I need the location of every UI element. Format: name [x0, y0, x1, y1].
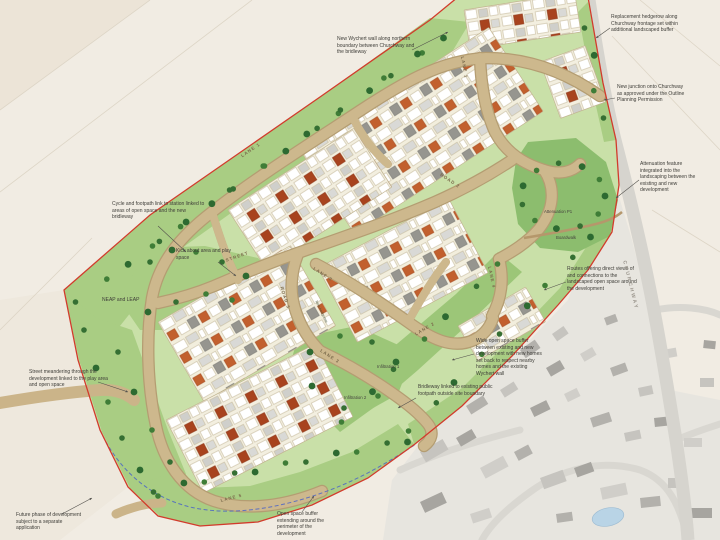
tree-icon	[601, 115, 607, 121]
tree-icon	[388, 73, 394, 79]
tree-icon	[602, 193, 609, 200]
tree-icon	[105, 399, 111, 405]
annotation-future-phase: Future phase of development subject to a…	[16, 512, 82, 532]
tree-icon	[229, 297, 235, 303]
tree-icon	[341, 405, 347, 411]
building-footprint	[640, 496, 661, 508]
annotation-wychert-wall: New Wychert wall along northern boundary…	[337, 36, 421, 56]
annotation-replacement-hedgerow: Replacement hedgerow along Churchway fro…	[611, 14, 679, 34]
tree-icon	[145, 309, 152, 316]
building-footprint	[703, 340, 716, 349]
tree-icon	[520, 182, 527, 189]
building-footprint	[684, 438, 702, 447]
tree-icon	[149, 427, 155, 433]
tree-icon	[73, 299, 79, 305]
annotation-open-space-buffer: Open space buffer extending around the p…	[277, 511, 335, 537]
tree-icon	[203, 291, 209, 297]
building-footprint	[690, 508, 712, 518]
annotation-attenuation-feature: Attenuation feature integrated into the …	[640, 161, 704, 194]
tree-icon	[542, 283, 548, 289]
tree-icon	[125, 261, 132, 268]
tree-icon	[157, 239, 163, 245]
tree-icon	[570, 254, 576, 260]
tree-icon	[150, 243, 156, 249]
tree-icon	[556, 160, 562, 166]
tree-icon	[178, 224, 184, 230]
annotation-infiltration-2: Infiltration 2	[344, 395, 388, 401]
tree-icon	[137, 467, 144, 474]
tree-icon	[474, 284, 480, 290]
tree-icon	[333, 450, 340, 457]
tree-icon	[434, 400, 440, 406]
tree-icon	[155, 493, 161, 499]
tree-icon	[497, 331, 503, 337]
tree-icon	[406, 428, 412, 434]
annotation-street-meandering: Street meandering through the developmen…	[29, 369, 111, 389]
tree-icon	[252, 469, 259, 476]
tree-icon	[202, 479, 208, 485]
tree-icon	[524, 302, 531, 309]
tree-icon	[553, 225, 560, 232]
tree-icon	[167, 459, 173, 465]
masterplan-page: New Wychert wall along northern boundary…	[0, 0, 720, 540]
annotation-cycle-link: Cycle and footpath link to station linke…	[112, 201, 206, 221]
annotation-neap-leap: NEAP and LEAP	[102, 297, 172, 304]
tree-icon	[495, 261, 501, 267]
tree-icon	[309, 383, 316, 390]
tree-icon	[577, 223, 583, 229]
annotation-attenuation-pond: Attenuation P1	[544, 209, 604, 215]
annotation-boardwalk: Boardwalk	[556, 235, 596, 241]
annotation-infiltration-1: Infiltration 1	[377, 364, 417, 370]
tree-icon	[147, 259, 153, 265]
tree-icon	[404, 439, 411, 446]
tree-icon	[131, 389, 138, 396]
tree-icon	[384, 440, 390, 446]
tree-icon	[442, 313, 449, 320]
tree-icon	[339, 419, 345, 425]
tree-icon	[314, 126, 320, 132]
tree-icon	[282, 148, 289, 155]
annotation-wide-buffer: Wide open space buffer between existing …	[476, 338, 546, 377]
tree-icon	[303, 131, 310, 138]
tree-icon	[579, 163, 586, 170]
tree-icon	[534, 168, 540, 174]
tree-icon	[369, 339, 375, 345]
tree-icon	[209, 200, 216, 207]
tree-icon	[232, 470, 238, 476]
tree-icon	[119, 435, 125, 441]
tree-icon	[181, 480, 188, 487]
tree-icon	[591, 52, 598, 59]
building-footprint	[700, 378, 714, 387]
tree-icon	[283, 460, 289, 466]
tree-icon	[81, 327, 87, 333]
tree-icon	[520, 202, 526, 208]
annotation-bridleway: Bridleway linked to existing public foot…	[418, 384, 494, 397]
tree-icon	[303, 459, 309, 465]
tree-icon	[532, 218, 538, 224]
tree-icon	[366, 87, 373, 94]
tree-icon	[227, 187, 233, 193]
tree-icon	[381, 75, 387, 81]
tree-icon	[307, 349, 314, 356]
tree-icon	[115, 349, 121, 355]
annotation-new-junction: New junction onto Churchway as approved …	[617, 84, 687, 104]
tree-icon	[337, 333, 343, 339]
tree-icon	[338, 107, 344, 113]
tree-icon	[591, 88, 597, 94]
tree-icon	[260, 163, 266, 169]
tree-icon	[597, 177, 603, 183]
tree-icon	[243, 273, 250, 280]
tree-icon	[169, 247, 176, 254]
tree-icon	[104, 276, 110, 282]
tree-icon	[151, 489, 157, 495]
tree-icon	[422, 336, 428, 342]
tree-icon	[582, 25, 588, 31]
tree-icon	[354, 449, 360, 455]
tree-icon	[173, 299, 179, 305]
